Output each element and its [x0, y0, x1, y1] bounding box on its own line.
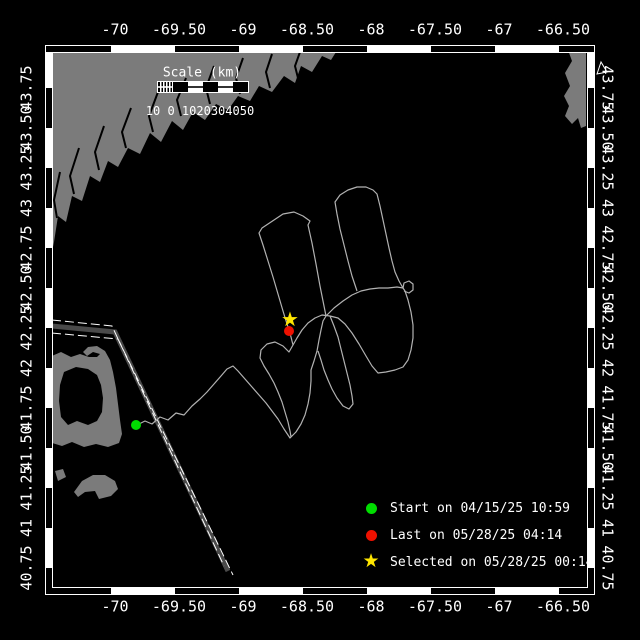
lon-tick-label-bottom: -66.50	[536, 600, 590, 615]
legend-item-start: Start on 04/15/25 10:59	[366, 499, 594, 518]
lon-tick-label-top: -67.50	[408, 23, 462, 38]
lat-tick-label-left: 42.50	[20, 265, 35, 310]
legend-selected-label: Selected on 05/28/25 00:14	[390, 555, 594, 570]
lon-tick-label-top: -69	[229, 23, 256, 38]
lat-tick-label-left: 40.75	[20, 545, 35, 590]
lon-tick-label-bottom: -70	[101, 600, 128, 615]
lat-tick-label-left: 41.50	[20, 425, 35, 470]
legend-start-label: Start on 04/15/25 10:59	[390, 501, 570, 516]
legend-item-selected: ★ Selected on 05/28/25 00:14	[366, 553, 594, 572]
lat-tick-label-left: 41.75	[20, 385, 35, 430]
map-figure: -70-69.50-69-68.50-68-67.50-67-66.50 -70…	[0, 0, 640, 640]
lon-tick-label-top: -66.50	[536, 23, 590, 38]
scale-bar	[158, 82, 249, 93]
last-dot-icon	[366, 530, 377, 541]
lat-tick-label-right: 42.50	[600, 265, 615, 310]
lat-tick-label-right: 41.25	[600, 465, 615, 510]
lat-tick-label-left: 41	[20, 519, 35, 537]
legend-last-label: Last on 05/28/25 04:14	[390, 528, 562, 543]
selected-star-icon: ★	[362, 553, 380, 572]
lat-tick-label-right: 43.25	[600, 145, 615, 190]
lon-tick-label-top: -70	[101, 23, 128, 38]
lon-tick-label-bottom: -69	[229, 600, 256, 615]
start-marker	[131, 420, 141, 430]
lat-tick-label-left: 43.75	[20, 65, 35, 110]
lon-tick-label-bottom: -68	[357, 600, 384, 615]
legend-item-last: Last on 05/28/25 04:14	[366, 526, 594, 545]
lat-tick-label-left: 42.75	[20, 225, 35, 270]
lat-tick-label-left: 42.25	[20, 305, 35, 350]
lat-tick-label-right: 43.75	[600, 65, 615, 110]
lat-tick-label-right: 41.75	[600, 385, 615, 430]
lon-tick-label-bottom: -67.50	[408, 600, 462, 615]
lat-tick-label-right: 40.75	[600, 545, 615, 590]
scale-bar-tick-labels: 10 0 1020304050	[146, 104, 254, 118]
lon-tick-label-top: -69.50	[152, 23, 206, 38]
lon-tick-label-top: -67	[485, 23, 512, 38]
start-dot-icon	[366, 503, 377, 514]
legend: Start on 04/15/25 10:59 Last on 05/28/25…	[366, 499, 594, 580]
lon-tick-label-bottom: -67	[485, 600, 512, 615]
lon-tick-label-top: -68	[357, 23, 384, 38]
lat-tick-label-left: 42	[20, 359, 35, 377]
lon-tick-label-top: -68.50	[280, 23, 334, 38]
lon-tick-label-bottom: -68.50	[280, 600, 334, 615]
lat-tick-label-left: 43.50	[20, 105, 35, 150]
lat-tick-label-right: 43	[600, 199, 615, 217]
lat-tick-label-left: 43	[20, 199, 35, 217]
lat-tick-label-right: 42	[600, 359, 615, 377]
lat-tick-label-left: 43.25	[20, 145, 35, 190]
lat-tick-label-right: 43.50	[600, 105, 615, 150]
lon-tick-label-bottom: -69.50	[152, 600, 206, 615]
lat-tick-label-right: 42.25	[600, 305, 615, 350]
lat-tick-label-right: 41.50	[600, 425, 615, 470]
lat-tick-label-right: 42.75	[600, 225, 615, 270]
lat-tick-label-right: 41	[600, 519, 615, 537]
selected-marker: ★	[281, 309, 299, 329]
scale-bar-title: Scale (km)	[163, 66, 241, 81]
lat-tick-label-left: 41.25	[20, 465, 35, 510]
